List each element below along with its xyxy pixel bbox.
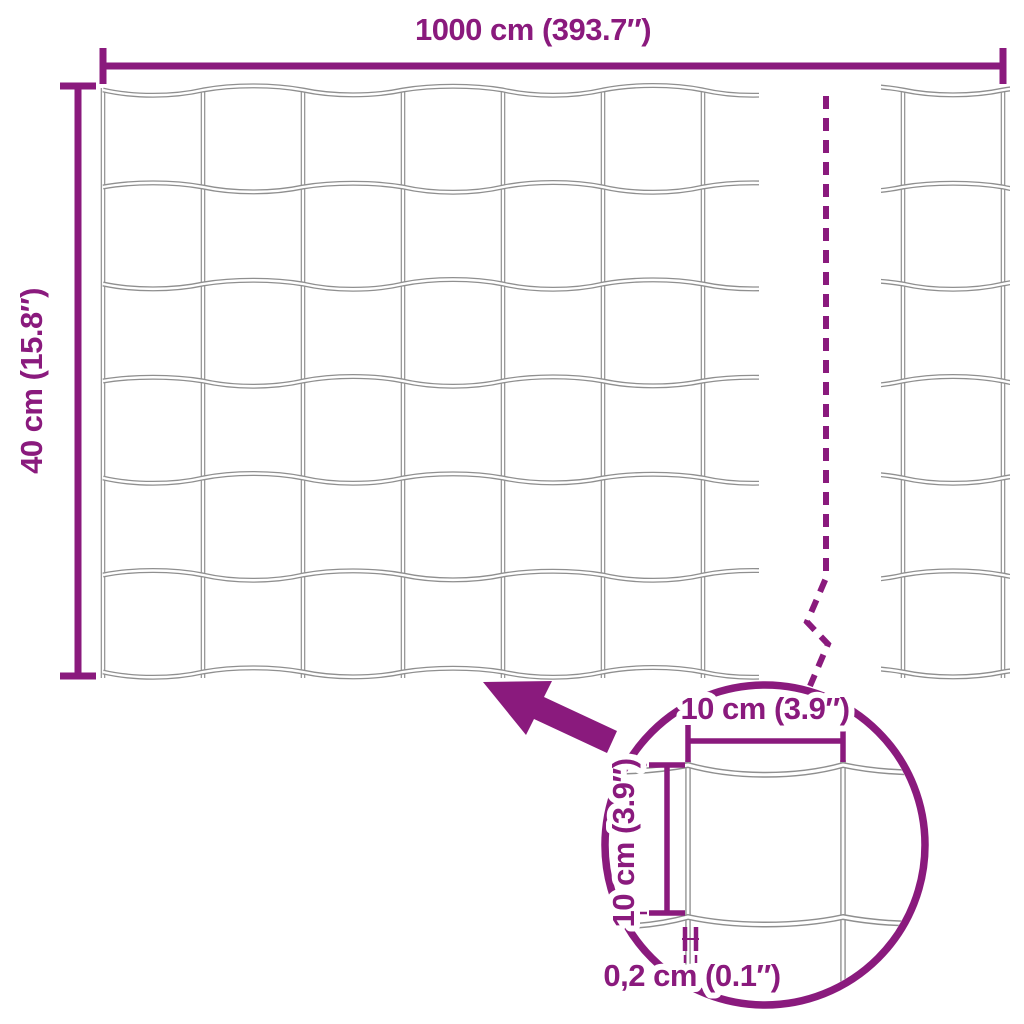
break-line: [807, 96, 828, 686]
detail-height-dimension: [636, 765, 685, 913]
detail-mesh-width-label: 10 cm (3.9″): [680, 691, 849, 726]
total-height-label: 40 cm (15.8″): [14, 288, 49, 474]
fence-dimension-diagram: 1000 cm (393.7″) 40 cm (15.8″) 10 cm (3.…: [0, 0, 1024, 1024]
total-width-label: 1000 cm (393.7″): [415, 12, 651, 47]
arrow-icon: [483, 681, 617, 753]
wire-mesh-panels: [103, 86, 1024, 679]
diagram-canvas: 1000 cm (393.7″) 40 cm (15.8″) 10 cm (3.…: [0, 0, 1024, 1024]
magnifier-circle-icon: [605, 685, 925, 1005]
detail-wire-thickness-label: 0,2 cm (0.1″): [603, 958, 780, 993]
height-dimension: [60, 86, 96, 676]
detail-width-dimension: [688, 722, 843, 762]
detail-mesh-height-label: 10 cm (3.9″): [606, 758, 641, 927]
width-dimension: [103, 48, 1003, 84]
